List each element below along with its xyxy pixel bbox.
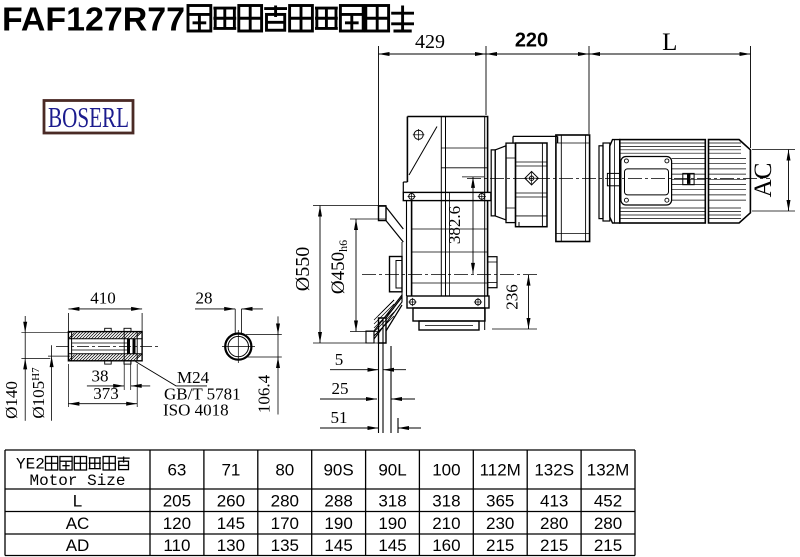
svg-text:63: 63	[167, 461, 186, 480]
svg-text:170: 170	[271, 514, 299, 533]
svg-text:AC: AC	[66, 514, 90, 533]
svg-text:373: 373	[93, 384, 119, 403]
svg-text:25: 25	[332, 379, 349, 398]
svg-text:190: 190	[324, 514, 352, 533]
svg-text:106.4: 106.4	[255, 374, 274, 413]
svg-text:90S: 90S	[323, 461, 353, 480]
svg-text:205: 205	[163, 492, 191, 511]
svg-text:280: 280	[594, 514, 622, 533]
svg-text:280: 280	[540, 514, 568, 533]
svg-text:28: 28	[196, 289, 213, 308]
svg-text:413: 413	[540, 492, 568, 511]
svg-text:215: 215	[594, 536, 622, 555]
svg-text:ISO 4018: ISO 4018	[163, 401, 229, 420]
svg-text:110: 110	[163, 536, 190, 555]
svg-text:429: 429	[415, 31, 445, 53]
svg-text:236: 236	[503, 284, 522, 310]
svg-text:260: 260	[217, 492, 245, 511]
svg-text:Ø550: Ø550	[292, 247, 314, 291]
svg-text:145: 145	[324, 536, 352, 555]
svg-text:AC: AC	[750, 163, 777, 198]
svg-text:5: 5	[335, 350, 344, 369]
svg-text:365: 365	[486, 492, 514, 511]
svg-text:90L: 90L	[378, 461, 406, 480]
svg-text:410: 410	[90, 289, 116, 308]
svg-text:160: 160	[432, 536, 460, 555]
svg-text:BOSERL: BOSERL	[48, 103, 129, 134]
svg-text:120: 120	[163, 514, 191, 533]
svg-text:FAF127R77: FAF127R77	[2, 1, 185, 38]
svg-text:38: 38	[92, 367, 109, 386]
svg-text:145: 145	[217, 514, 245, 533]
svg-text:132S: 132S	[534, 461, 574, 480]
svg-text:145: 145	[378, 536, 406, 555]
svg-text:L: L	[73, 492, 82, 511]
svg-text:130: 130	[217, 536, 245, 555]
svg-text:210: 210	[432, 514, 460, 533]
svg-text:71: 71	[221, 461, 240, 480]
svg-text:215: 215	[486, 536, 514, 555]
svg-text:280: 280	[271, 492, 299, 511]
svg-text:Ø140: Ø140	[2, 381, 21, 419]
svg-text:318: 318	[432, 492, 460, 511]
svg-text:AD: AD	[66, 536, 90, 555]
svg-text:452: 452	[594, 492, 622, 511]
svg-text:318: 318	[378, 492, 406, 511]
svg-text:YE2: YE2	[16, 456, 45, 474]
svg-text:135: 135	[271, 536, 299, 555]
svg-text:100: 100	[432, 461, 460, 480]
svg-text:L: L	[662, 29, 677, 56]
svg-text:220: 220	[515, 30, 548, 52]
svg-text:190: 190	[378, 514, 406, 533]
svg-text:Motor Size: Motor Size	[29, 472, 125, 490]
svg-text:288: 288	[324, 492, 352, 511]
svg-text:51: 51	[331, 408, 348, 427]
svg-text:215: 215	[540, 536, 568, 555]
svg-text:80: 80	[275, 461, 294, 480]
svg-text:382.6: 382.6	[445, 206, 464, 244]
svg-text:112M: 112M	[480, 461, 521, 480]
svg-text:132M: 132M	[587, 461, 630, 480]
svg-text:230: 230	[486, 514, 514, 533]
